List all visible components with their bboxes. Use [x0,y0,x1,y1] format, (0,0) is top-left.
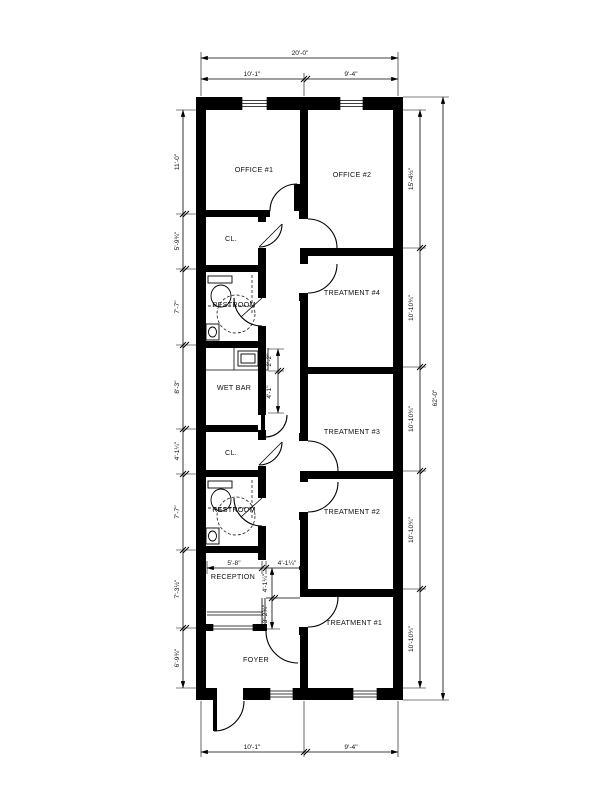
dim-right-overall: 62'-0" [432,389,439,406]
walls [196,97,403,731]
wall-closet-lower-south [206,470,258,477]
dim-wetbar-counter: 2'-2" [266,353,273,367]
dim-right-1: 10'-10¾" [408,294,415,321]
room-label-treatment-3: TREATMENT #3 [324,427,380,436]
door-arc-office1 [270,184,297,211]
wall-treatment4-treatment3 [308,367,393,374]
room-label-office-1: OFFICE #1 [235,165,274,174]
dim-right-0: 15'-4½" [407,167,415,190]
wall-wetbar-south [206,425,258,432]
door-arc-foyer [266,631,298,663]
dim-right-4: 10'-10¾" [408,625,415,652]
dim-vestibule-lower: 3'-2¾" [262,604,269,623]
room-label-treatment-2: TREATMENT #2 [324,507,380,516]
room-label-restroom-upper: RESTROOM [212,300,256,309]
dim-vestibule-upper: 4'-1¼" [262,573,269,592]
dim-reception-width: 5'-8" [227,560,241,567]
dim-top-overall: 20'-0" [292,50,309,57]
door-arc-office2 [308,219,337,248]
toilet-tank-lower-icon [208,481,232,488]
dim-bottom-right: 9'-4" [344,744,358,751]
door-leaf-treatment1 [299,627,308,635]
door-leaf-treatment2 [299,512,308,520]
door-leaf-office1 [294,184,300,211]
floor-plan-drawing: 20'-0" 10'-1" 9'-4" 10'-1" 9'-4" 11'-0" … [0,0,612,792]
floor-plan-sheet: 20'-0" 10'-1" 9'-4" 10'-1" 9'-4" 11'-0" … [0,0,612,792]
dim-left-7: 6'-9¾" [174,648,181,667]
wall-office2-treatment4 [308,248,393,256]
wall-restroom-lower-south [206,546,258,553]
wall-treatment2-treatment1 [308,589,393,597]
door-arc-entry [214,701,244,731]
dim-right-2: 10'-10¾" [408,405,415,432]
room-label-treatment-1: TREATMENT #1 [326,618,382,627]
dim-top-left: 10'-1" [244,71,261,78]
dim-left-1: 5'-9¾" [174,231,181,250]
dim-left-2: 7'-7" [174,300,181,314]
room-label-foyer: FOYER [243,655,269,664]
exterior-wall-left [196,97,206,700]
reception-counter [207,598,300,624]
dim-left-5: 7'-7" [174,505,181,519]
door-leaf-office2 [299,211,308,219]
dim-left-3: 8'-3" [174,380,181,394]
dim-left-0: 11'-0" [174,153,181,170]
dim-left-4: 4'-1¼" [174,441,181,460]
door-leaf-entry [213,700,217,731]
exterior-wall-right [393,97,403,700]
room-label-treatment-4: TREATMENT #4 [324,288,380,297]
wall-restroom-upper-south [206,341,266,348]
entry-opening [217,688,243,700]
dim-bottom-left: 10'-1" [244,744,261,751]
dim-top-right: 9'-4" [344,71,358,78]
wall-closet-upper-south [206,265,258,272]
room-label-closet-lower: CL. [225,448,237,457]
room-label-wet-bar: WET BAR [217,383,251,392]
wetbar-sink-basin-icon [241,354,255,363]
door-leaf-wetbar [261,413,265,438]
door-leaf-foyer [260,624,267,631]
room-label-reception: RECEPTION [211,572,255,581]
exterior-wall-top [196,97,403,110]
sink-basin-upper-icon [209,327,217,337]
room-label-closet-upper: CL. [225,234,237,243]
door-arc-treatment3 [308,441,338,471]
door-leaf-treatment4 [299,293,308,301]
dim-left-6: 7'-3½" [173,579,181,598]
sink-basin-lower-icon [209,531,217,541]
wall-treatment3-treatment2 [308,471,393,479]
toilet-tank-upper-icon [208,276,232,283]
wall-office1-south [206,210,270,217]
room-label-restroom-lower: RESTROOM [212,505,256,514]
dim-vestibule-width: 4'-1¼" [278,560,297,567]
dim-right-3: 10'-10¾" [408,516,415,543]
dim-wetbar-depth: 4'-1" [266,385,273,399]
door-leaf-treatment3 [299,433,308,441]
room-label-office-2: OFFICE #2 [333,170,372,179]
door-arc-wetbar [265,415,287,437]
